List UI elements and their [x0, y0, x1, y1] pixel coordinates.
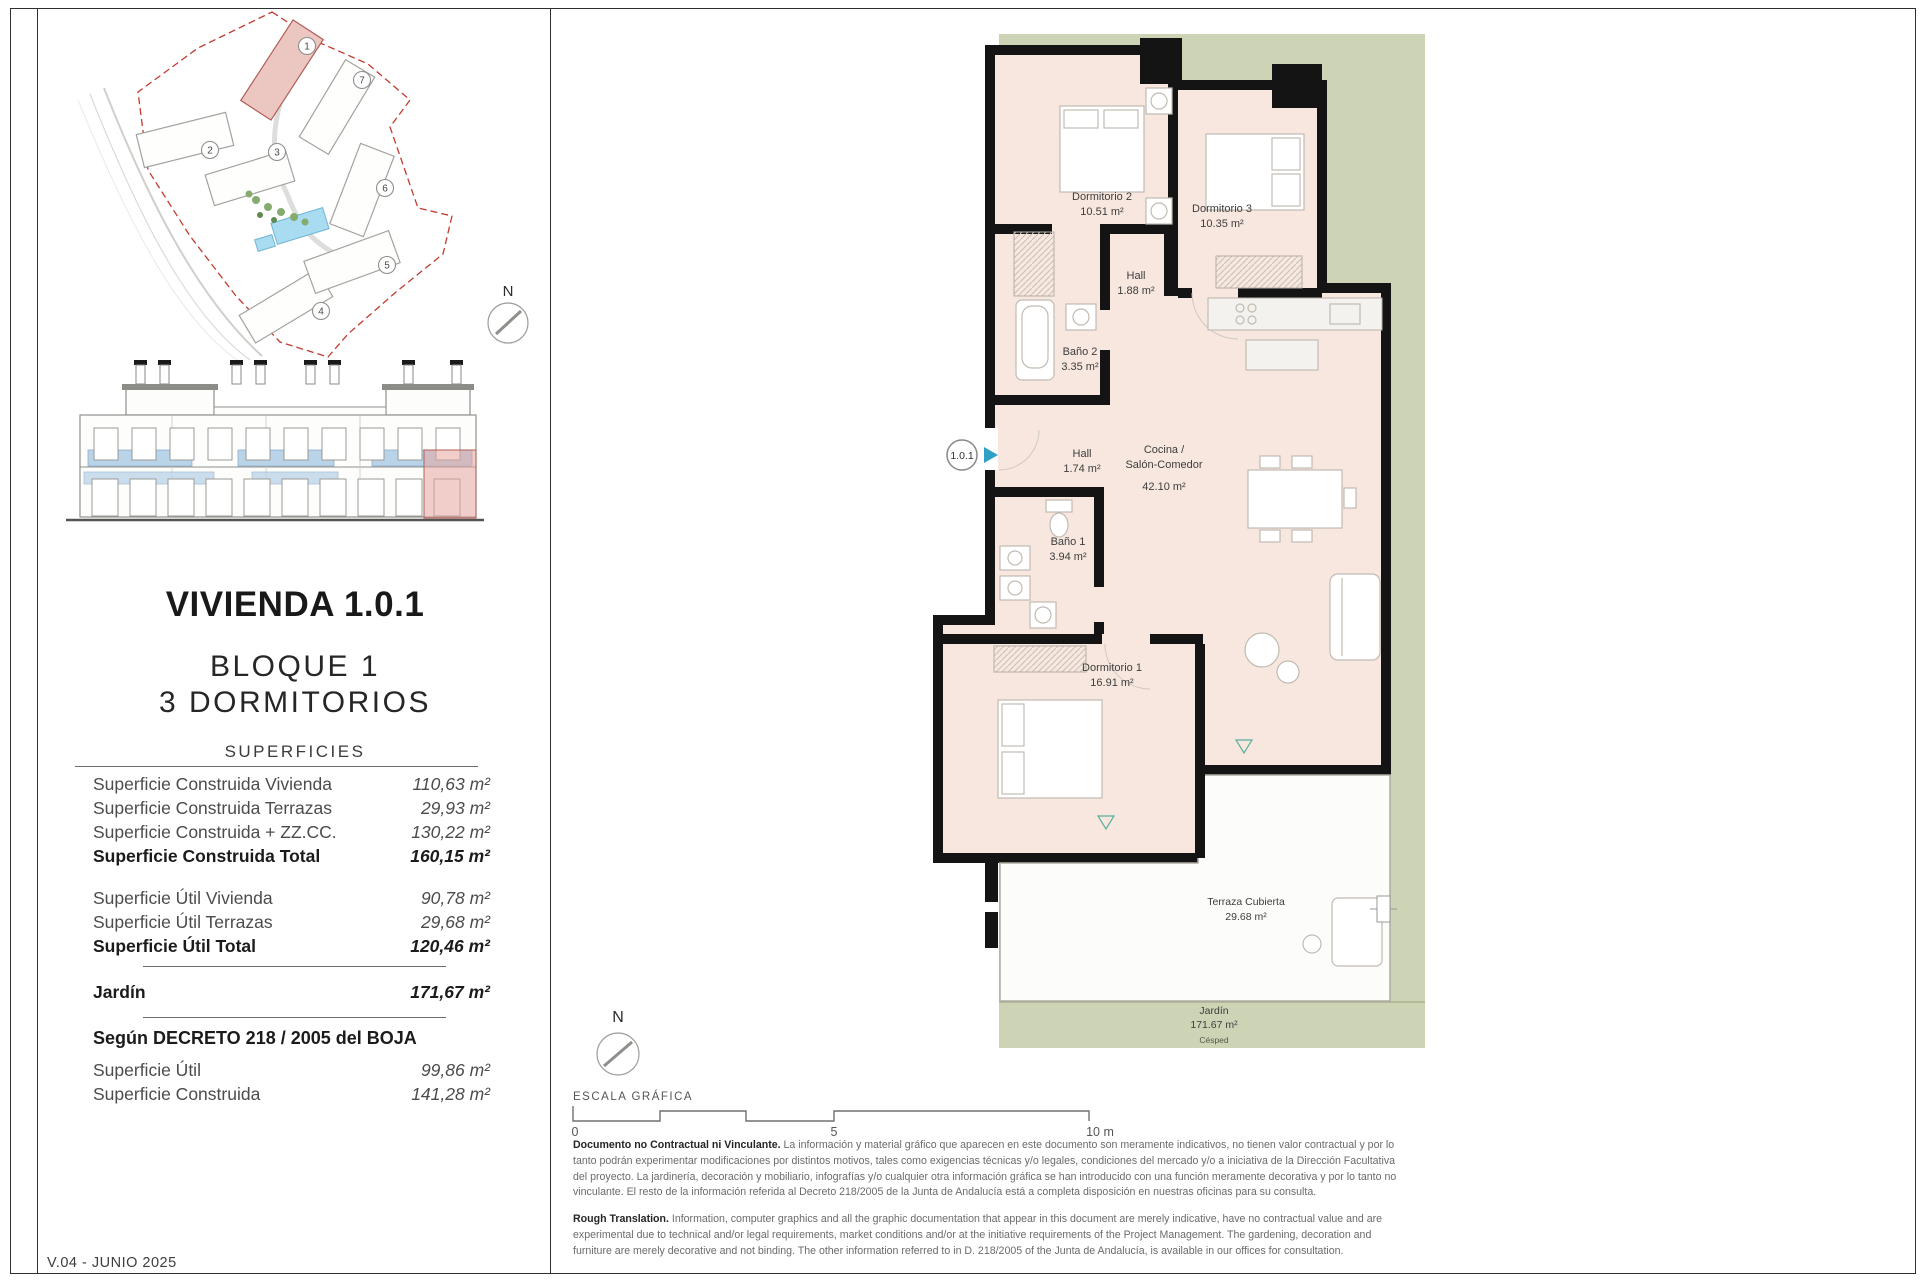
- disclaimer-english: Rough Translation. Information, computer…: [573, 1212, 1406, 1259]
- inner-left-border: [37, 8, 38, 1274]
- scale-title: ESCALA GRÁFICA: [573, 1090, 693, 1103]
- room-area: 16.91 m²: [1090, 677, 1134, 689]
- row-label: Superficie Construida Vivienda: [93, 772, 332, 796]
- divider: [143, 1017, 446, 1018]
- marker-label: 6: [382, 184, 388, 195]
- table-row-total: Superficie Útil Total120,46 m²: [93, 934, 490, 958]
- version-label: V.04 - JUNIO 2025: [47, 1255, 177, 1271]
- marker-label: 7: [359, 76, 365, 87]
- room-name: Dormitorio 1: [1082, 662, 1142, 674]
- row-value: 171,67 m²: [410, 980, 490, 1004]
- surfaces-table-decreto: Superficie Útil99,86 m² Superficie Const…: [93, 1058, 490, 1106]
- unit-marker-label: 1.0.1: [950, 450, 974, 462]
- header-rule: [75, 766, 478, 767]
- row-label: Jardín: [93, 980, 146, 1004]
- row-value: 29,93 m²: [421, 796, 490, 820]
- room-area: 1.74 m²: [1063, 463, 1101, 475]
- disclaimer-lead: Documento no Contractual ni Vinculante.: [573, 1139, 781, 1151]
- surfaces-table-util: Superficie Útil Vivienda90,78 m² Superfi…: [93, 886, 490, 958]
- divider: [143, 966, 446, 967]
- chimneys: [134, 360, 463, 384]
- disclaimer-spanish: Documento no Contractual ni Vinculante. …: [573, 1138, 1406, 1201]
- surfaces-header: SUPERFICIES: [60, 742, 530, 762]
- room-name: Hall: [1127, 270, 1146, 282]
- decreto-header: Según DECRETO 218 / 2005 del BOJA: [93, 1028, 417, 1049]
- marker-label: 2: [207, 146, 213, 157]
- row-label: Superficie Útil: [93, 1058, 201, 1082]
- room-area: 1.88 m²: [1117, 285, 1155, 297]
- room-name: Hall: [1073, 448, 1092, 460]
- scale-tick: 0: [572, 1125, 579, 1139]
- room-name: Salón-Comedor: [1125, 459, 1202, 471]
- scale-tick: 5: [831, 1125, 838, 1139]
- room-name: Dormitorio 2: [1072, 191, 1132, 203]
- north-compass-icon: N: [488, 283, 528, 343]
- north-compass-icon: N: [597, 1009, 639, 1075]
- plan-sheet: { "page": { "version": "V.04 - JUNIO 202…: [0, 0, 1920, 1280]
- row-value: 110,63 m²: [413, 772, 491, 796]
- row-value: 99,86 m²: [421, 1058, 490, 1082]
- building-elevation: [60, 360, 490, 525]
- row-label: Superficie Construida + ZZ.CC.: [93, 820, 337, 844]
- row-label: Superficie Útil Terrazas: [93, 910, 273, 934]
- row-value: 120,46 m²: [410, 934, 490, 958]
- floor-plan: 1.0.1 Dormitorio 2 10.51 m² Dormitorio 3…: [930, 25, 1430, 1055]
- marker-label: 1: [304, 42, 310, 53]
- room-area: 3.94 m²: [1049, 551, 1087, 563]
- row-value: 29,68 m²: [421, 910, 490, 934]
- disclaimer-lead: Rough Translation.: [573, 1213, 669, 1225]
- row-value: 90,78 m²: [421, 886, 490, 910]
- room-name: Baño 1: [1051, 536, 1086, 548]
- table-row: Superficie Útil99,86 m²: [93, 1058, 490, 1082]
- row-label: Superficie Construida Total: [93, 844, 320, 868]
- scale-and-north: N ESCALA GRÁFICA 0 5 10 m: [560, 1000, 1120, 1140]
- terrace-window-symbol: [1377, 896, 1390, 922]
- highlighted-unit: [424, 450, 476, 518]
- table-row: Superficie Construida Vivienda110,63 m²: [93, 772, 490, 796]
- row-label: Superficie Construida: [93, 1082, 260, 1106]
- row-value: 141,28 m²: [411, 1082, 490, 1106]
- row-label: Superficie Útil Total: [93, 934, 256, 958]
- scale-bar: [573, 1106, 1089, 1121]
- row-value: 130,22 m²: [411, 820, 490, 844]
- room-area: 171.67 m²: [1190, 1019, 1238, 1031]
- row-value: 160,15 m²: [410, 844, 490, 868]
- table-row: Superficie Construida + ZZ.CC.130,22 m²: [93, 820, 490, 844]
- room-area: 42.10 m²: [1142, 481, 1186, 493]
- room-name: Cocina /: [1144, 444, 1185, 456]
- table-row: Superficie Útil Terrazas29,68 m²: [93, 910, 490, 934]
- table-row: Superficie Útil Vivienda90,78 m²: [93, 886, 490, 910]
- north-label: N: [503, 283, 514, 300]
- room-area: 10.51 m²: [1080, 206, 1124, 218]
- marker-label: 5: [384, 261, 390, 272]
- marker-label: 4: [318, 307, 324, 318]
- scale-tick: 10 m: [1086, 1125, 1114, 1139]
- block-subtitle: BLOQUE 1: [60, 650, 530, 684]
- room-area: 10.35 m²: [1200, 218, 1244, 230]
- room-area: 29.68 m²: [1225, 911, 1267, 923]
- table-row-total: Superficie Construida Total160,15 m²: [93, 844, 490, 868]
- room-area: 3.35 m²: [1061, 361, 1099, 373]
- surfaces-table-construida: Superficie Construida Vivienda110,63 m² …: [93, 772, 490, 868]
- room-note: Césped: [1199, 1035, 1229, 1045]
- disclaimer-body: Information, computer graphics and all t…: [573, 1213, 1382, 1257]
- room-name: Terraza Cubierta: [1207, 896, 1285, 908]
- site-plan: 1 2 3 4 5 6 7 N: [60, 5, 545, 360]
- chimney-block: [1272, 64, 1322, 108]
- room-name: Jardín: [1199, 1005, 1228, 1017]
- unit-title: VIVIENDA 1.0.1: [60, 585, 530, 625]
- column-divider: [550, 8, 551, 1274]
- row-label: Superficie Útil Vivienda: [93, 886, 273, 910]
- room-name: Baño 2: [1063, 346, 1098, 358]
- north-label: N: [612, 1009, 624, 1026]
- bedrooms-subtitle: 3 DORMITORIOS: [60, 686, 530, 720]
- marker-label: 3: [274, 148, 280, 159]
- table-row: Superficie Construida Terrazas29,93 m²: [93, 796, 490, 820]
- room-name: Dormitorio 3: [1192, 203, 1252, 215]
- row-label: Superficie Construida Terrazas: [93, 796, 332, 820]
- garden-row: Jardín171,67 m²: [93, 980, 490, 1004]
- table-row: Superficie Construida141,28 m²: [93, 1082, 490, 1106]
